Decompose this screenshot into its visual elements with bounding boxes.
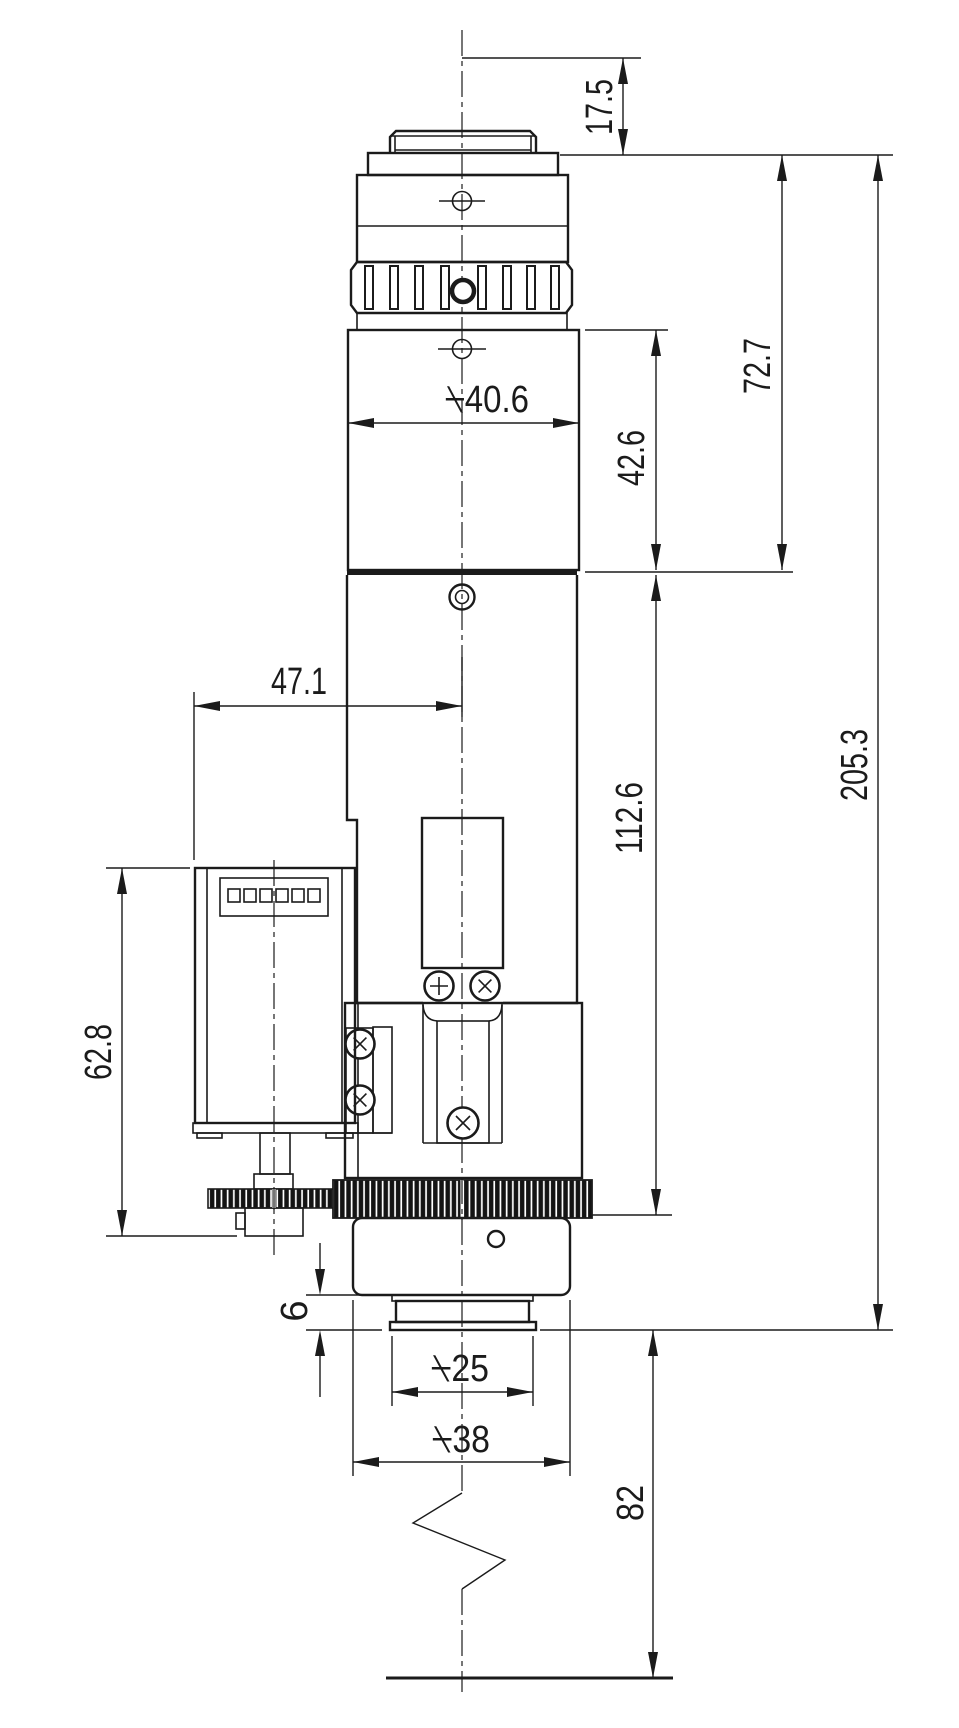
phillips-screw-rail-right	[471, 972, 500, 1001]
upper-tube	[348, 330, 579, 570]
dim-tube-diameter: ⍀40.6	[348, 379, 579, 428]
dim-label-6: 6	[274, 1300, 316, 1321]
dim-label-72-7: 72.7	[737, 338, 779, 394]
dim-upper-assembly: 72.7	[737, 155, 787, 570]
dim-label-82: 82	[610, 1485, 652, 1521]
dim-label-25: ⍀25	[431, 1348, 489, 1390]
phillips-screw-clamp-bottom	[346, 1086, 375, 1115]
dim-motor-length: 62.8	[78, 868, 237, 1236]
clamp-plate	[346, 1027, 393, 1133]
dim-label-112-6: 112.6	[609, 782, 651, 854]
adapter-hole	[488, 1231, 504, 1247]
c-mount-barrel	[390, 131, 536, 153]
motor-base-plate	[193, 1123, 392, 1138]
phillips-screw-rail-left	[425, 972, 454, 1001]
dim-working-distance: 82	[610, 1330, 658, 1678]
phillips-screw-tongue	[448, 1108, 479, 1139]
dim-label-40-6: ⍀40.6	[445, 379, 529, 421]
objective-tip	[390, 1295, 536, 1330]
dim-label-47-1: 47.1	[271, 661, 327, 703]
motor-knob	[236, 1208, 303, 1236]
dim-label-205-3: 205.3	[834, 729, 876, 801]
set-screw-hole	[452, 280, 474, 302]
dim-label-62-8: 62.8	[78, 1024, 120, 1080]
phillips-screw-clamp-top	[346, 1030, 375, 1059]
axis-break-zigzag	[413, 1493, 505, 1589]
dim-tip-length: 6	[274, 1243, 390, 1397]
technical-drawing-lens-assembly: 17.5 72.7 42.6 112.6 205.3 47.1	[0, 0, 959, 1728]
dim-label-42-6: 42.6	[611, 430, 653, 486]
dim-body-length: 112.6	[609, 575, 661, 1215]
focus-housing	[345, 1003, 582, 1178]
dim-overall-length: 205.3	[834, 155, 883, 1330]
c-mount-flange	[368, 153, 558, 175]
motor-pinion-gear	[208, 1189, 334, 1208]
dim-label-38: ⍀38	[432, 1419, 490, 1461]
joint-line	[347, 570, 577, 575]
dim-tube-length: 42.6	[611, 330, 661, 570]
dim-flange-focal: 17.5	[579, 58, 628, 155]
dim-label-17-5: 17.5	[579, 79, 621, 135]
